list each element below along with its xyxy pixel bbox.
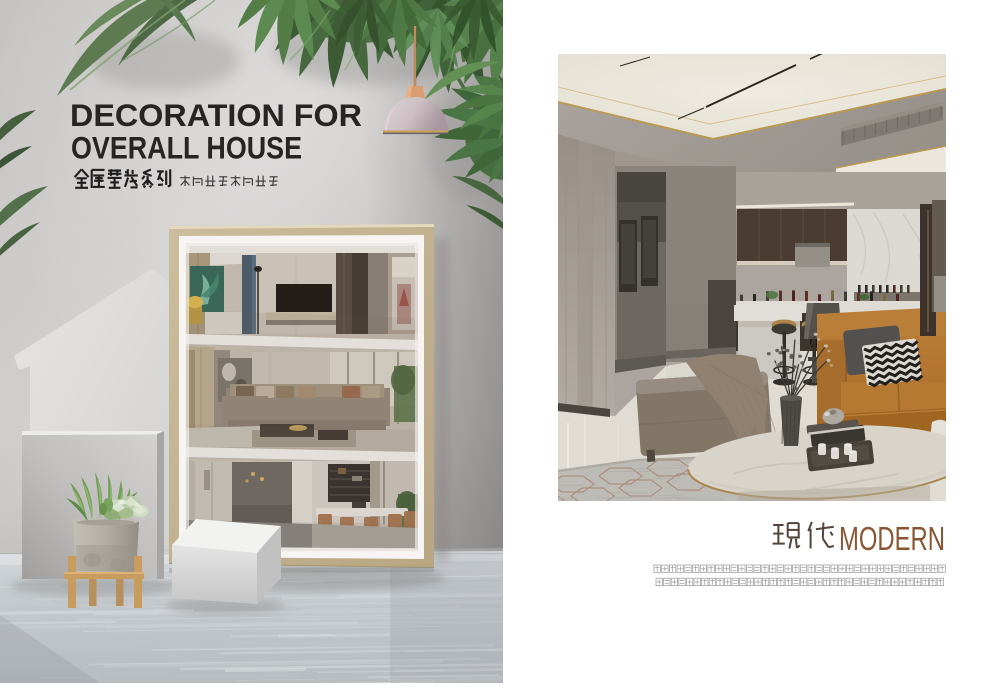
svg-text:DECORATION FOR: DECORATION FOR bbox=[70, 97, 362, 133]
svg-text:OVERALL HOUSE: OVERALL HOUSE bbox=[71, 130, 302, 166]
svg-text:MODERN: MODERN bbox=[839, 520, 945, 557]
